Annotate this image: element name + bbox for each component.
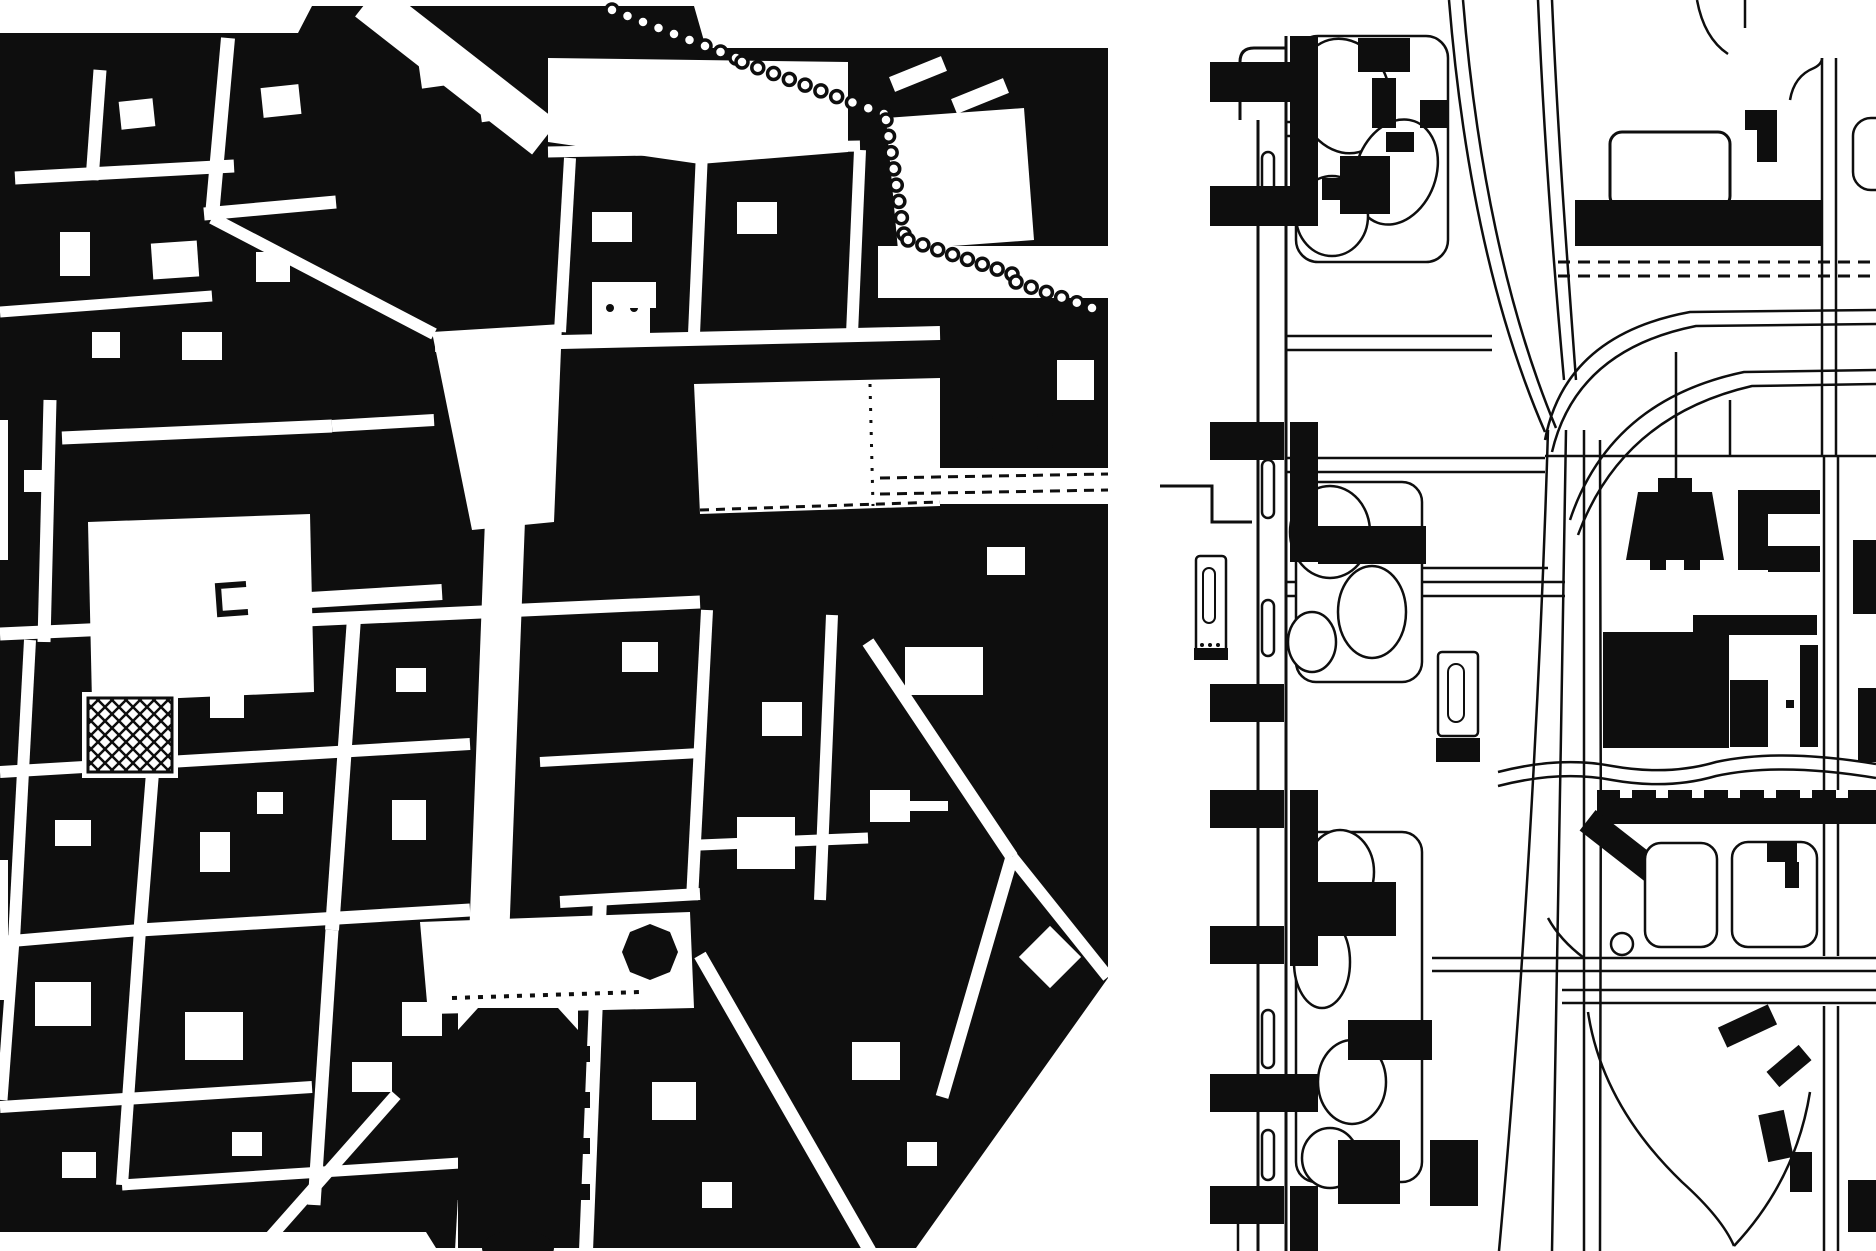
- slot-building-inner: [1203, 568, 1215, 623]
- civic-block: [1730, 680, 1768, 747]
- street: [852, 150, 860, 334]
- courtyard: [907, 1142, 937, 1166]
- block-building: [1785, 862, 1799, 888]
- courtyard: [987, 547, 1025, 575]
- courtyard: [737, 817, 795, 869]
- courtyard: [119, 98, 156, 129]
- block-building: [1767, 842, 1797, 862]
- edge-building: [1848, 1180, 1876, 1232]
- spine-bar-building: [1290, 1186, 1318, 1251]
- slot-dot: [1216, 643, 1220, 647]
- median-island: [1262, 1010, 1274, 1068]
- courtyard: [182, 332, 222, 360]
- street: [310, 592, 442, 600]
- slot-building-base: [1194, 648, 1228, 660]
- slab-notch: [1692, 790, 1704, 798]
- buttress: [578, 1138, 590, 1154]
- parkway-bundle: [1499, 430, 1548, 1251]
- slot-building-base: [1436, 738, 1480, 762]
- e-building: [1768, 546, 1820, 572]
- curve-building: [1718, 1004, 1777, 1047]
- buttress: [446, 1184, 458, 1200]
- block-building: [1338, 1140, 1400, 1204]
- loop-road: [1588, 1012, 1734, 1246]
- courtyard: [200, 832, 230, 872]
- left-figure-ground-map: [0, 0, 1120, 1251]
- edge-outline: [1853, 118, 1876, 190]
- street: [560, 894, 700, 902]
- civic-block: [1800, 645, 1818, 747]
- courtyard: [392, 800, 426, 840]
- courtyard: [478, 94, 515, 122]
- park-blob: [1288, 612, 1336, 672]
- right-modernist-plan-map: [1150, 0, 1876, 1251]
- civic-dot: [1786, 700, 1794, 708]
- street: [44, 400, 50, 642]
- block-building: [1430, 1140, 1478, 1206]
- e-building: [1738, 490, 1820, 514]
- slab-building: [1210, 790, 1284, 828]
- courtyard: [257, 792, 283, 814]
- block-building: [1348, 1020, 1432, 1060]
- median-island: [1262, 600, 1274, 656]
- median-island: [1262, 460, 1274, 518]
- ramp-arc: [1552, 324, 1876, 452]
- parkway-bundle: [1552, 430, 1566, 1251]
- spine-bar-building: [1290, 422, 1318, 562]
- courtyard: [852, 1042, 900, 1080]
- courtyard: [418, 57, 461, 88]
- spine-bar-building: [1290, 790, 1318, 966]
- block-building: [1322, 178, 1342, 200]
- parkway: [1552, 0, 1576, 380]
- courtyard: [762, 702, 802, 736]
- auditorium-foot: [1684, 560, 1700, 570]
- roundabout-outline: [1611, 933, 1633, 955]
- slot-dot: [1200, 643, 1204, 647]
- courtyard: [55, 820, 91, 846]
- courtyard: [402, 1002, 442, 1036]
- wavy-road: [1498, 769, 1876, 786]
- parkway: [1538, 0, 1564, 380]
- courtyard: [905, 647, 983, 695]
- courtyard: [261, 84, 302, 118]
- courtyard: [232, 1132, 262, 1156]
- slab-building: [1210, 926, 1284, 964]
- column-dot: [606, 304, 614, 312]
- spine-bar-building: [1290, 36, 1318, 214]
- edge-building: [1853, 540, 1876, 614]
- top-road: [1697, 0, 1728, 54]
- outlined-building: [1610, 132, 1730, 208]
- spine-bar-building: [1318, 882, 1396, 936]
- courtyard: [1057, 360, 1094, 400]
- cathedral: [458, 1008, 578, 1248]
- slab-notch: [1620, 790, 1632, 798]
- traffic-island-outline: [1645, 843, 1717, 947]
- buttress: [446, 1138, 458, 1154]
- slab-notch: [1764, 790, 1776, 798]
- street: [332, 420, 434, 426]
- block-building: [1420, 100, 1448, 128]
- spine-bar-building: [1318, 526, 1426, 564]
- slab-notch: [1656, 790, 1668, 798]
- civic-block: [1603, 632, 1729, 748]
- road-zigzag: [1160, 486, 1252, 522]
- courtyard: [210, 692, 244, 718]
- slot-dot: [1208, 643, 1212, 647]
- crosshatch-block: [88, 698, 172, 772]
- wavy-road: [1498, 755, 1876, 772]
- road-hook: [1790, 58, 1822, 100]
- auditorium-cap: [1658, 478, 1692, 492]
- curve-building: [1766, 1045, 1811, 1087]
- ramp-arc: [1578, 384, 1876, 535]
- slab-notch: [1800, 790, 1812, 798]
- street: [548, 146, 860, 152]
- slab-notch: [1836, 790, 1848, 798]
- courtyard: [35, 982, 91, 1026]
- curve-building: [1758, 1110, 1793, 1162]
- courtyard: [592, 212, 632, 242]
- block-building: [1745, 110, 1777, 130]
- slot-building-inner: [1448, 664, 1464, 722]
- courtyard: [24, 470, 50, 492]
- auditorium-trapezoid: [1626, 492, 1724, 560]
- street: [92, 70, 100, 180]
- block-building: [1757, 130, 1777, 162]
- auditorium-foot: [1650, 560, 1666, 570]
- courtyard: [396, 668, 426, 692]
- courtyard: [622, 642, 658, 672]
- ramp-arc: [1548, 918, 1584, 958]
- edge-building: [1858, 688, 1876, 762]
- courtyard: [352, 1062, 392, 1092]
- courtyard: [151, 240, 199, 279]
- courtyard: [256, 252, 290, 282]
- slab-building: [1210, 684, 1284, 722]
- baptistery-octagon: [622, 924, 678, 980]
- courtyard: [870, 790, 910, 822]
- slab-notch: [1728, 790, 1740, 798]
- buttress: [578, 1092, 590, 1108]
- slab-building: [1210, 1186, 1284, 1224]
- courtyard: [62, 1152, 96, 1178]
- street: [694, 152, 702, 334]
- e-building: [1738, 514, 1768, 570]
- ramp-arc: [1570, 370, 1876, 520]
- buttress: [578, 1046, 590, 1062]
- courtyard: [60, 232, 90, 276]
- courtyard: [92, 332, 120, 358]
- slab-building: [1210, 422, 1284, 460]
- plaza: [88, 514, 314, 702]
- block-building: [1340, 156, 1390, 214]
- long-slab-building: [1575, 200, 1821, 246]
- slab-building: [1210, 1074, 1318, 1112]
- median-island: [1262, 1130, 1274, 1180]
- parkway: [1449, 0, 1545, 432]
- figure-ground-comparison: [0, 0, 1876, 1251]
- block-building: [1358, 38, 1410, 72]
- courtyard: [737, 202, 777, 234]
- courtyard: [622, 282, 656, 308]
- buttress: [446, 1046, 458, 1062]
- main-street: [489, 520, 505, 940]
- curve-building: [1790, 1152, 1812, 1192]
- block-building: [1386, 132, 1414, 152]
- block-building: [1372, 78, 1396, 128]
- courtyard: [185, 1012, 243, 1060]
- buttress: [446, 1092, 458, 1108]
- buttress: [578, 1184, 590, 1200]
- courtyard: [702, 1182, 732, 1208]
- park-blob: [1338, 566, 1406, 658]
- courtyard: [652, 1082, 696, 1120]
